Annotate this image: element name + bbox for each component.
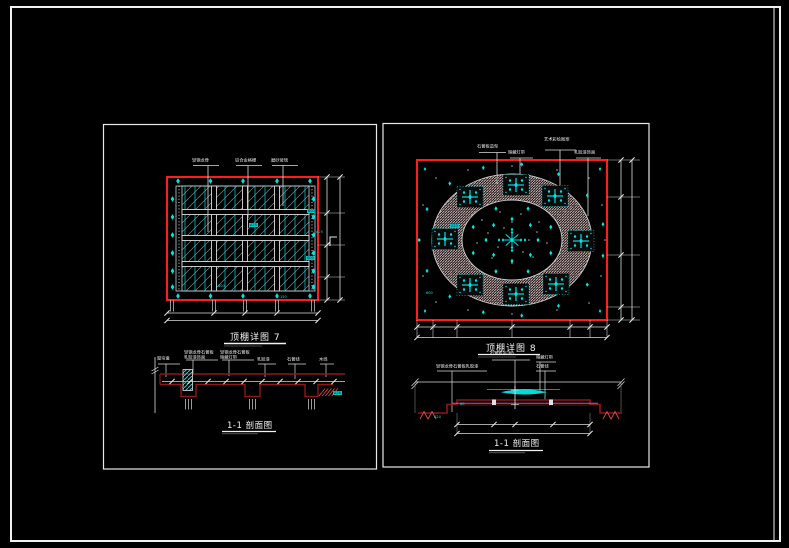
sparkle bbox=[510, 217, 513, 222]
sparkle bbox=[448, 181, 451, 185]
diamond-ornament bbox=[171, 250, 175, 256]
plan-callout: 乳胶漆饰面 bbox=[574, 150, 595, 155]
stipple-dot bbox=[511, 221, 513, 223]
dim-tag: A26 bbox=[333, 391, 342, 395]
medallion-dot bbox=[565, 291, 566, 292]
diamond-ornament bbox=[209, 178, 213, 184]
break-hatch bbox=[322, 389, 328, 397]
sparkle bbox=[586, 282, 589, 286]
medallion-dot bbox=[479, 277, 480, 278]
sparkle bbox=[601, 222, 604, 226]
section-callout: 乳胶漆 bbox=[257, 357, 270, 362]
diamond-ornament bbox=[171, 232, 175, 238]
sparkle bbox=[536, 238, 539, 243]
stipple-dot bbox=[435, 301, 437, 303]
stipple-dot bbox=[556, 169, 558, 171]
dim-tag: A24 bbox=[434, 415, 441, 419]
stipple-dot bbox=[481, 219, 483, 221]
stipple-dot bbox=[503, 227, 505, 229]
stipple-dot bbox=[556, 309, 558, 311]
medallion-dot bbox=[479, 189, 480, 190]
stipple-dot bbox=[588, 177, 590, 179]
sparkle bbox=[448, 294, 451, 298]
dim-tag: 600 bbox=[307, 209, 316, 213]
stipple-dot bbox=[467, 169, 469, 171]
sparkle bbox=[599, 309, 602, 313]
medallion-dot bbox=[570, 248, 571, 249]
stipple-dot bbox=[522, 251, 524, 253]
dim-tag: 60 bbox=[460, 402, 464, 406]
section-callout: 轻钢龙骨石膏板乳胶漆 bbox=[436, 364, 478, 369]
section-callout: 石膏板吊顶6 bbox=[490, 351, 514, 356]
stipple-dot bbox=[538, 221, 540, 223]
stipple-dot bbox=[422, 275, 424, 277]
sheet-frame bbox=[11, 7, 780, 541]
section-callout: 石膏线 bbox=[536, 364, 549, 369]
sparkle bbox=[520, 313, 523, 317]
sparkle bbox=[472, 225, 475, 230]
sparkle bbox=[511, 249, 514, 253]
diamond-ornament bbox=[171, 284, 175, 290]
medallion-dot bbox=[454, 246, 455, 247]
medallion-dot bbox=[545, 291, 546, 292]
medallion-dot bbox=[505, 177, 506, 178]
diamond-ornament bbox=[308, 293, 312, 299]
sparkle bbox=[426, 207, 429, 211]
sparkle bbox=[557, 172, 560, 176]
sparkle bbox=[601, 254, 604, 258]
diamond-ornament bbox=[275, 293, 279, 299]
diamond-ornament bbox=[171, 268, 175, 274]
sparkle bbox=[492, 223, 495, 228]
stipple-dot bbox=[520, 213, 522, 215]
section-callout: 木线 bbox=[319, 357, 327, 362]
diamond-ornament bbox=[171, 214, 175, 220]
sparkle bbox=[426, 269, 429, 273]
medallion-dot bbox=[479, 204, 480, 205]
diamond-ornament bbox=[176, 178, 180, 184]
medallion-dot bbox=[525, 192, 526, 193]
sparkle bbox=[424, 309, 427, 313]
stipple-dot bbox=[491, 257, 493, 259]
sparkle bbox=[494, 206, 497, 211]
medallion-dot bbox=[459, 189, 460, 190]
cad-drawing-canvas bbox=[0, 0, 789, 548]
right-section-title: 1-1 剖面图 bbox=[494, 437, 540, 449]
sparkle bbox=[494, 269, 497, 274]
medallion-dot bbox=[454, 231, 455, 232]
stipple-dot bbox=[422, 204, 424, 206]
left-plan-title: 顶棚详图 7 bbox=[230, 330, 281, 343]
diamond-ornament bbox=[241, 178, 245, 184]
diamond-ornament bbox=[275, 178, 279, 184]
sparkle bbox=[529, 252, 532, 257]
medallion-dot bbox=[525, 177, 526, 178]
break-hatch bbox=[319, 389, 325, 397]
snowflake bbox=[510, 237, 514, 243]
dim-tag: 600 bbox=[306, 256, 315, 260]
medallion-dot bbox=[590, 248, 591, 249]
medallion-dot bbox=[525, 301, 526, 302]
medallion-dot bbox=[564, 203, 565, 204]
medallion-dot bbox=[479, 292, 480, 293]
medallion-dot bbox=[459, 277, 460, 278]
diamond-ornament bbox=[171, 196, 175, 202]
diamond-ornament bbox=[241, 293, 245, 299]
dim-tag: 150 bbox=[280, 295, 287, 299]
medallion-dot bbox=[564, 188, 565, 189]
sparkle bbox=[549, 251, 552, 256]
medallion-dot bbox=[459, 292, 460, 293]
section-callout: 暗藏灯带 bbox=[536, 355, 553, 360]
sparkle bbox=[511, 228, 514, 232]
sparkle bbox=[520, 162, 523, 166]
stipple-dot bbox=[467, 309, 469, 311]
stipple-dot bbox=[532, 256, 534, 258]
sparkle bbox=[526, 269, 529, 274]
sparkle bbox=[424, 167, 427, 171]
medallion-dot bbox=[505, 301, 506, 302]
snowflake bbox=[502, 238, 505, 242]
dim-tag: A25 bbox=[249, 223, 258, 227]
section-callout: 轻钢龙骨石膏板乳胶漆饰面 bbox=[184, 350, 217, 360]
section-callout: 石膏线 bbox=[287, 357, 300, 362]
dim-tag: A25 bbox=[316, 230, 323, 234]
stipple-dot bbox=[476, 242, 478, 244]
stipple-dot bbox=[536, 231, 538, 233]
medallion-dot bbox=[505, 286, 506, 287]
dim-tag: 600 bbox=[218, 284, 225, 288]
section-callout: 窗帘盒 bbox=[157, 356, 170, 361]
medallion-dot bbox=[434, 246, 435, 247]
medallion-dot bbox=[544, 203, 545, 204]
sparkle bbox=[599, 167, 602, 171]
stipple-dot bbox=[511, 165, 513, 167]
stipple-dot bbox=[487, 232, 489, 234]
plan-callout: 轻钢龙骨 bbox=[192, 158, 209, 163]
cad-viewport: 轻钢龙骨 铝合金格栅 磨砂玻璃 顶棚详图 7 600 A25 600 A25 6… bbox=[0, 0, 789, 548]
medallion-dot bbox=[570, 233, 571, 234]
medallion-dot bbox=[544, 188, 545, 189]
sparkle bbox=[557, 304, 560, 308]
medallion-dot bbox=[525, 286, 526, 287]
stipple-dot bbox=[511, 262, 513, 264]
sparkle bbox=[549, 225, 552, 230]
sparkle bbox=[484, 238, 487, 243]
stipple-dot bbox=[499, 211, 501, 213]
left-section-title: 1-1 剖面图 bbox=[227, 419, 273, 431]
medallion-dot bbox=[459, 204, 460, 205]
sparkle bbox=[498, 238, 501, 242]
dim-tag: A23 bbox=[450, 224, 459, 228]
stipple-dot bbox=[528, 239, 530, 241]
sparkle bbox=[524, 238, 527, 242]
stipple-dot bbox=[435, 177, 437, 179]
sparkle bbox=[492, 252, 495, 257]
stipple-dot bbox=[601, 204, 603, 206]
stipple-dot bbox=[588, 302, 590, 304]
left-plan-drawing bbox=[167, 166, 345, 347]
sparkle bbox=[482, 165, 485, 169]
snowflake bbox=[520, 238, 523, 242]
break-hatch bbox=[325, 389, 331, 397]
plan-callout: 暗藏灯带 bbox=[508, 150, 525, 155]
medallion-dot bbox=[434, 231, 435, 232]
medallion-dot bbox=[590, 233, 591, 234]
plan-callout: 铝合金格栅 bbox=[235, 158, 256, 163]
stipple-dot bbox=[604, 239, 606, 241]
sparkle bbox=[472, 251, 475, 256]
stipple-dot bbox=[497, 246, 499, 248]
diamond-ornament bbox=[209, 293, 213, 299]
plan-callout: 石膏板造型 bbox=[477, 144, 498, 149]
dim-tag: 600 bbox=[426, 291, 433, 295]
diamond-ornament bbox=[176, 293, 180, 299]
sparkle bbox=[482, 310, 485, 314]
section-callout: 轻钢龙骨石膏板暗藏灯带 bbox=[220, 350, 253, 360]
sparkle bbox=[526, 206, 529, 211]
medallion-dot bbox=[505, 192, 506, 193]
stipple-dot bbox=[546, 242, 548, 244]
plan-callout: 磨砂玻璃 bbox=[271, 158, 288, 163]
medallion-dot bbox=[545, 276, 546, 277]
stipple-dot bbox=[600, 275, 602, 277]
plan-callout: 艺术彩绘图案 bbox=[544, 137, 577, 142]
medallion-dot bbox=[565, 276, 566, 277]
stipple-dot bbox=[511, 313, 513, 315]
diamond-ornament bbox=[308, 178, 312, 184]
stipple-dot bbox=[419, 239, 421, 241]
sparkle bbox=[529, 223, 532, 228]
